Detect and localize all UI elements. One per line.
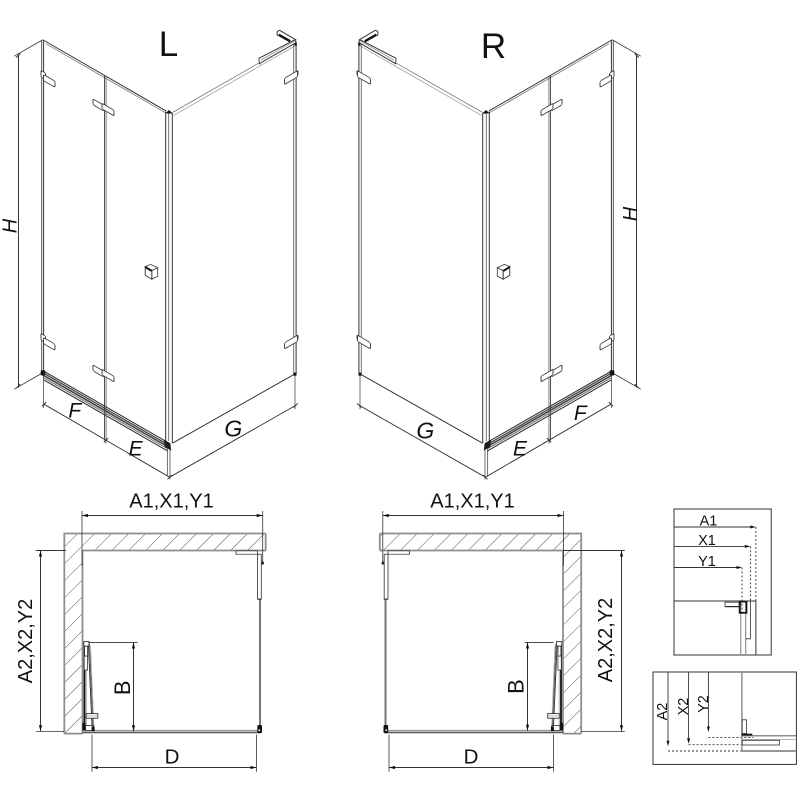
svg-text:L: L [159, 25, 178, 64]
svg-text:A1,X1,Y1: A1,X1,Y1 [129, 490, 214, 512]
svg-text:E: E [129, 438, 144, 461]
svg-text:F: F [68, 400, 82, 423]
svg-text:A1: A1 [700, 514, 718, 530]
svg-text:G: G [224, 416, 242, 442]
svg-text:X2: X2 [676, 698, 692, 716]
svg-text:G: G [416, 418, 434, 444]
svg-text:D: D [464, 746, 479, 769]
svg-text:R: R [481, 27, 506, 66]
svg-text:D: D [165, 746, 180, 769]
svg-text:Y2: Y2 [696, 695, 712, 713]
svg-text:X1: X1 [698, 533, 716, 549]
svg-text:A2,X2,Y2: A2,X2,Y2 [15, 599, 37, 684]
svg-text:A2: A2 [655, 703, 671, 721]
svg-text:A1,X1,Y1: A1,X1,Y1 [430, 490, 515, 512]
svg-text:Y1: Y1 [698, 554, 716, 570]
svg-text:E: E [513, 438, 528, 461]
svg-text:A2,X2,Y2: A2,X2,Y2 [595, 598, 617, 683]
svg-text:F: F [574, 402, 588, 425]
svg-text:H: H [0, 218, 22, 233]
svg-text:B: B [110, 680, 135, 695]
svg-text:H: H [620, 206, 642, 221]
svg-text:B: B [504, 679, 529, 694]
